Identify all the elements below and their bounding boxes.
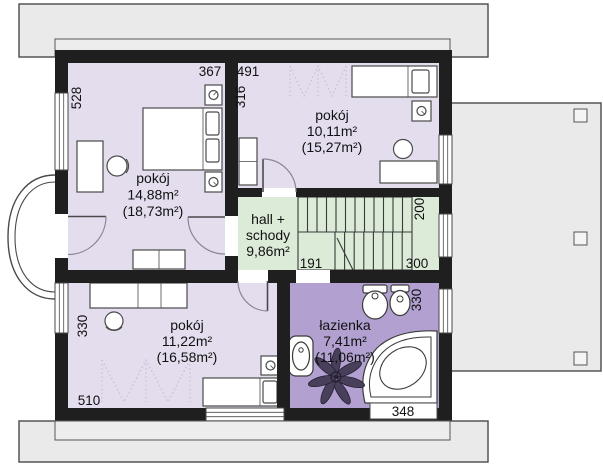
- window-room1: [55, 93, 68, 170]
- dim-330-bath-label: 330: [409, 289, 424, 312]
- room1-door-opening: [225, 216, 238, 256]
- hall-name-line2: schody: [246, 227, 290, 243]
- room1-area: 14,88m²: [127, 187, 179, 203]
- bathroom-area-total: (11,06m²): [315, 349, 375, 365]
- pillow: [206, 112, 219, 135]
- room3-door-opening: [238, 270, 268, 283]
- pillow: [412, 70, 429, 93]
- terrace-post-icon: [574, 232, 587, 245]
- room3-area: 11,22m²: [162, 333, 213, 349]
- pillow: [206, 139, 219, 162]
- long-cabinet: [90, 283, 187, 308]
- chair: [105, 312, 123, 330]
- terrace-post-icon: [574, 109, 587, 122]
- floor-plan-canvas: pokój 14,88m² (18,73m²) pokój 10,11m² (1…: [0, 0, 603, 474]
- dim-200-label: 200: [412, 198, 427, 221]
- pillow: [263, 381, 277, 403]
- dim-316-label: 316: [233, 86, 248, 109]
- dim-491-label: 491: [237, 64, 260, 79]
- dim-330-room3-label: 330: [75, 315, 90, 338]
- room1-area-total: (18,73m²): [123, 203, 184, 219]
- room2-area-total: (15,27m²): [302, 139, 363, 155]
- window-room3-left: [55, 283, 68, 333]
- roof-overhang-top: [19, 4, 488, 57]
- room1-name: pokój: [136, 170, 169, 186]
- bathroom-door-opening: [296, 270, 330, 283]
- desk: [380, 161, 437, 183]
- bathroom-area: 7,41m²: [323, 333, 367, 349]
- wall-room3-bath: [277, 276, 290, 413]
- dim-348-label: 348: [392, 404, 415, 419]
- dim-191-label: 191: [300, 256, 323, 271]
- window-room3-bottom: [206, 408, 284, 421]
- roof-inner-edge-bottom: [55, 421, 450, 440]
- chair: [107, 156, 127, 176]
- sink-icon: [293, 342, 310, 370]
- dim-528-label: 528: [69, 87, 84, 110]
- roof-overhang-bottom: [19, 421, 488, 462]
- bathroom-name: łazienka: [319, 317, 371, 333]
- desk: [77, 141, 103, 192]
- floor-plan: pokój 14,88m² (18,73m²) pokój 10,11m² (1…: [0, 0, 603, 474]
- wall-top: [55, 50, 452, 63]
- terrace: [451, 103, 601, 371]
- toilet-icon: [363, 291, 388, 319]
- hall-name-line1: hall +: [251, 211, 285, 227]
- dim-367-label: 367: [199, 64, 222, 79]
- room2-name: pokój: [315, 107, 348, 123]
- room2-door-opening: [262, 188, 296, 197]
- room2-area: 10,11m²: [307, 123, 358, 139]
- hall-area: 9,86m²: [246, 243, 290, 259]
- room3-name: pokój: [170, 317, 203, 333]
- window-room2: [439, 135, 452, 184]
- room3-area-total: (16,58m²): [157, 349, 218, 365]
- window-bathroom-right: [439, 289, 452, 333]
- terrace-post-icon: [574, 352, 587, 365]
- dim-300-label: 300: [406, 256, 429, 271]
- dim-510-label: 510: [78, 393, 101, 408]
- chair: [394, 140, 413, 159]
- bidet-icon: [390, 291, 410, 316]
- balcony-door-opening: [55, 214, 68, 258]
- balcony: [8, 175, 55, 299]
- window-hall: [439, 214, 452, 257]
